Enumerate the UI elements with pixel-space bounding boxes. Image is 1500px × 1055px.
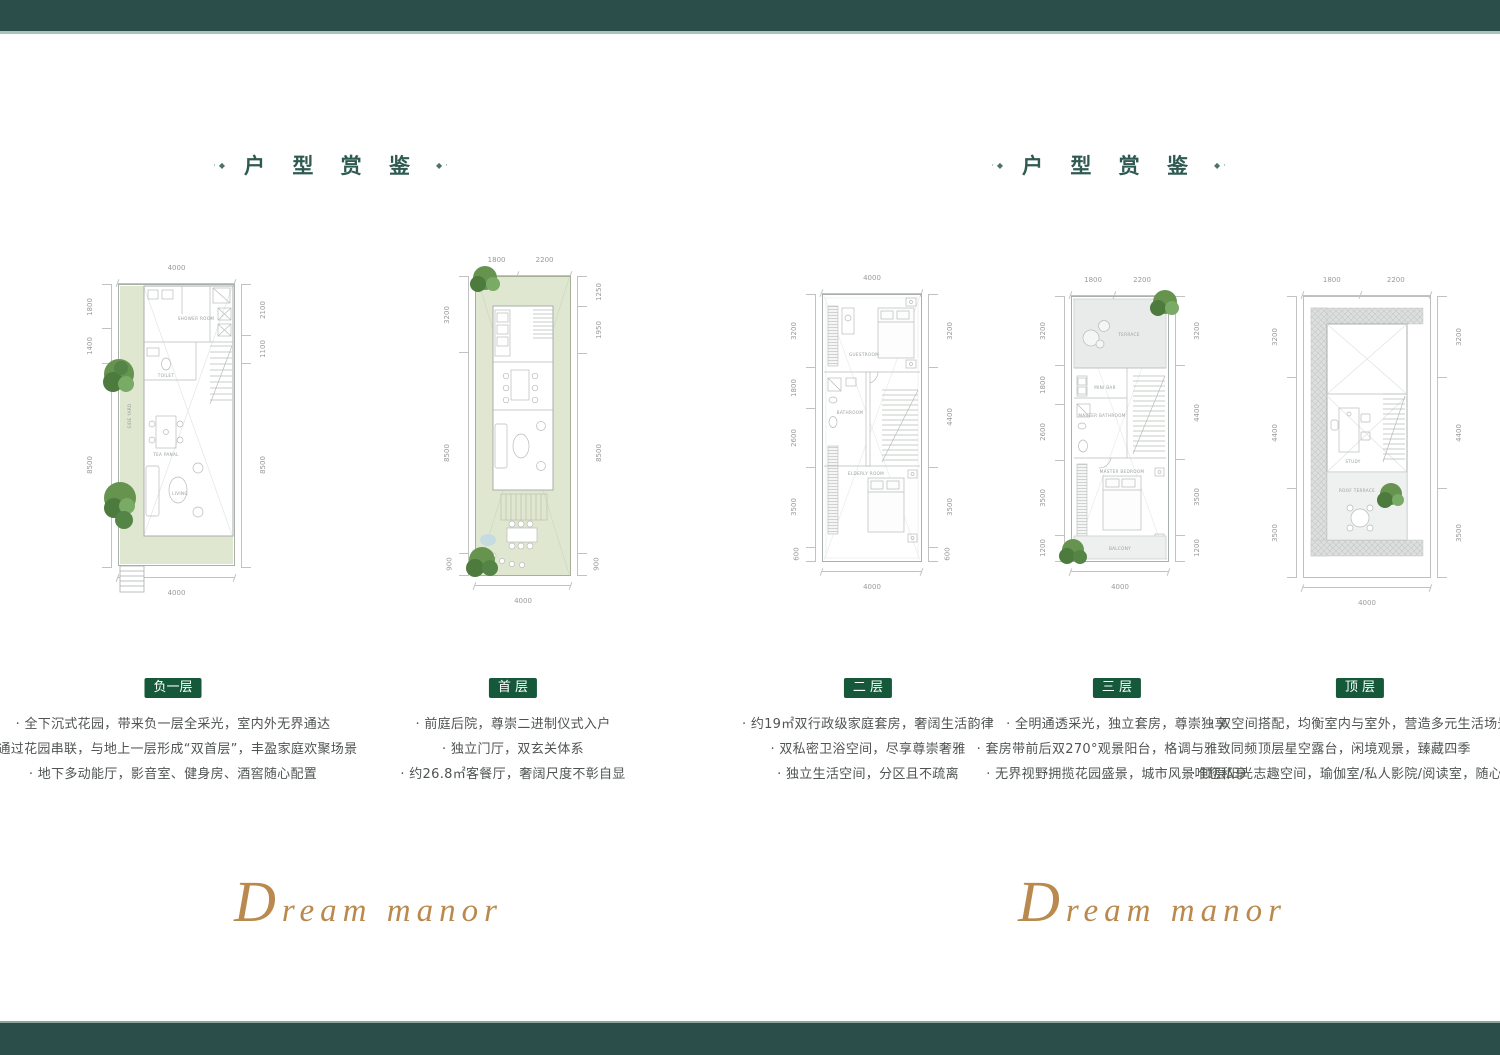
room-label-balcony: BALCONY xyxy=(1109,546,1131,551)
exterior-stairs xyxy=(120,566,144,592)
dimension-chain-bottom: 4000 xyxy=(1303,578,1431,608)
dimension-chain-bottom: 4000 xyxy=(822,562,922,592)
floorplan-drawing: STUDY ROOF TERRACE xyxy=(1303,296,1431,578)
dimension-chain-left: 32001800260035001200 xyxy=(1029,296,1071,562)
dimension-label: 1800 xyxy=(1084,276,1102,284)
dimension-label: 4000 xyxy=(168,264,186,272)
dimension-label: 900 xyxy=(445,558,453,571)
dimension-chain-top: 18002200 xyxy=(1303,262,1431,296)
dimension-label: 900 xyxy=(593,558,601,571)
dimension-label: 8500 xyxy=(86,456,94,474)
dimension-label: 3500 xyxy=(1271,524,1279,542)
dimension-label: 1100 xyxy=(259,340,267,358)
diamond-deco-right-icon: ◆· xyxy=(436,161,451,170)
dimension-label: 3500 xyxy=(946,498,954,516)
dimension-label: 1800 xyxy=(488,256,506,264)
dimension-label: 600 xyxy=(792,548,800,561)
floorplan-second-floor: 4000 3200180026003500600 320044003500600… xyxy=(780,260,964,592)
dimension-label: 1200 xyxy=(1039,539,1047,557)
dimension-label: 3500 xyxy=(1193,488,1201,506)
dimension-label: 4400 xyxy=(1271,424,1279,442)
floor-badge-basement: 负一层 xyxy=(144,678,201,698)
dimension-label: 1400 xyxy=(86,337,94,355)
room-label-mini-bar: MINI BAR xyxy=(1094,385,1116,390)
floorplan-drawing xyxy=(475,276,571,576)
dimension-label: 1950 xyxy=(595,321,603,339)
description-line: 双空间搭配，均衡室内与室外，营造多元生活场景 xyxy=(1140,712,1500,737)
dimension-label: 4000 xyxy=(1111,583,1129,591)
floorplan-drawing: TERRACE MINI BAR MASTER BATHROOM MASTER … xyxy=(1071,296,1169,562)
dimension-label: 1800 xyxy=(790,379,798,397)
dimension-label: 4000 xyxy=(514,597,532,605)
dimension-label: 1250 xyxy=(595,283,603,301)
dimension-label: 3200 xyxy=(1271,328,1279,346)
dimension-label: 3500 xyxy=(1455,524,1463,542)
floorplan-first-floor: 18002200 32008500900 125019508500900 400… xyxy=(433,242,613,602)
floorplan-drawing: SHOWER ROOM TOILET SIDE YARD TEA PANAL L… xyxy=(118,284,235,568)
dimension-chain-right: 210011008500 xyxy=(235,284,277,568)
dimension-label: 3500 xyxy=(1039,489,1047,507)
room-label-guestroom: GUESTROOM xyxy=(849,352,879,357)
brochure-page: ·◆ 户 型 赏 鉴 ◆· ·◆ 户 型 赏 鉴 ◆· 4000 1800140… xyxy=(0,0,1500,1055)
dimension-label: 8500 xyxy=(595,445,603,463)
dimension-label: 8500 xyxy=(443,444,451,462)
room-label-living: LIVING xyxy=(172,491,188,496)
diamond-deco-left-icon: ·◆ xyxy=(991,161,1006,170)
dimension-chain-right: 3200440035001200 xyxy=(1169,296,1211,562)
floor-badge-third-floor: 三 层 xyxy=(1093,678,1141,698)
room-label-bathroom: BATHROOM xyxy=(837,410,864,415)
room-label-terrace: TERRACE xyxy=(1117,332,1139,337)
diamond-deco-right-icon: ◆· xyxy=(1214,161,1229,170)
dimension-label: 1800 xyxy=(1039,376,1047,394)
dimension-chain-left: 3200180026003500600 xyxy=(780,294,822,562)
floorplan-third-floor: 18002200 32001800260035001200 3200440035… xyxy=(1029,262,1211,592)
dimension-label: 4400 xyxy=(1455,424,1463,442)
room-label-master-bedroom: MASTER BEDROOM xyxy=(1100,469,1145,474)
room-label-master-bathroom: MASTER BATHROOM xyxy=(1078,413,1125,418)
left-panel-title: ·◆ 户 型 赏 鉴 ◆· xyxy=(172,150,492,180)
floorplan-top-floor: 18002200 320044003500 320044003500 4000 xyxy=(1261,262,1473,608)
dimension-chain-top: 18002200 xyxy=(1071,262,1169,296)
floorplan-basement: 4000 180014008500 210011008500 4000 xyxy=(76,250,277,598)
diamond-deco-left-icon: ·◆ xyxy=(213,161,228,170)
dimension-label: 2600 xyxy=(790,429,798,447)
brand-script-text: Dream manor xyxy=(1018,868,1287,935)
floor-description-top-floor: 双空间搭配，均衡室内与室外，营造多元生活场景 顶层星空露台，闲境观景，臻藏四季 … xyxy=(1140,712,1500,787)
bottom-frame-bar xyxy=(0,1021,1500,1055)
dimension-label: 1800 xyxy=(1323,276,1341,284)
brand-script-text: Dream manor xyxy=(234,868,503,935)
dimension-label: 3200 xyxy=(1193,322,1201,340)
room-label-tea: TEA PANAL xyxy=(152,452,179,457)
dimension-label: 3200 xyxy=(443,306,451,324)
dimension-label: 1200 xyxy=(1193,539,1201,557)
dimension-label: 1800 xyxy=(86,298,94,316)
dimension-chain-left: 32008500900 xyxy=(433,276,475,576)
description-line: 顶层阳光志趣空间，瑜伽室/私人影院/阅读室，随心而定 xyxy=(1140,762,1500,787)
dimension-label: 3200 xyxy=(946,322,954,340)
dimension-label: 3200 xyxy=(1039,322,1047,340)
right-panel-title: ·◆ 户 型 赏 鉴 ◆· xyxy=(950,150,1270,180)
dimension-chain-top: 4000 xyxy=(822,260,922,294)
page-title: 户 型 赏 鉴 xyxy=(244,150,420,180)
dimension-chain-left: 320044003500 xyxy=(1261,296,1303,578)
page-title: 户 型 赏 鉴 xyxy=(1022,150,1198,180)
dimension-chain-right: 125019508500900 xyxy=(571,276,613,576)
dimension-label: 4000 xyxy=(1358,599,1376,607)
dimension-label: 4400 xyxy=(946,408,954,426)
dimension-label: 3200 xyxy=(790,322,798,340)
dimension-label: 2100 xyxy=(259,301,267,319)
dimension-label: 8500 xyxy=(259,456,267,474)
room-label-shower: SHOWER ROOM xyxy=(178,316,215,321)
dimension-chain-bottom: 4000 xyxy=(475,576,571,602)
description-line: 顶层星空露台，闲境观景，臻藏四季 xyxy=(1140,737,1500,762)
room-label-elderly-room: ELDERLY ROOM xyxy=(848,471,884,476)
dimension-label: 3500 xyxy=(790,498,798,516)
floor-badge-first-floor: 首 层 xyxy=(489,678,537,698)
room-label-study: STUDY xyxy=(1345,459,1360,464)
dimension-label: 2600 xyxy=(1039,423,1047,441)
floor-badge-top-floor: 顶 层 xyxy=(1336,678,1384,698)
floorplan-drawing: GUESTROOM BATHROOM ELDERLY ROOM xyxy=(822,294,922,562)
dimension-label: 4400 xyxy=(1193,404,1201,422)
dimension-label: 3200 xyxy=(1455,328,1463,346)
dimension-chain-bottom: 4000 xyxy=(1071,562,1169,592)
dimension-label: 4000 xyxy=(863,274,881,282)
dimension-label: 600 xyxy=(944,548,952,561)
dimension-chain-right: 320044003500600 xyxy=(922,294,964,562)
dimension-label: 2200 xyxy=(1387,276,1405,284)
dimension-label: 4000 xyxy=(863,583,881,591)
dimension-chain-left: 180014008500 xyxy=(76,284,118,568)
room-label-toilet: TOILET xyxy=(157,373,175,378)
dimension-chain-right: 320044003500 xyxy=(1431,296,1473,578)
top-frame-bar xyxy=(0,0,1500,34)
dimension-label: 4000 xyxy=(168,589,186,597)
room-label-side-yard: SIDE YARD xyxy=(127,403,132,428)
dimension-label: 2200 xyxy=(536,256,554,264)
pond xyxy=(480,534,496,546)
room-label-roof-terrace: ROOF TERRACE xyxy=(1339,488,1375,493)
floor-badge-second-floor: 二 层 xyxy=(844,678,892,698)
dimension-label: 2200 xyxy=(1133,276,1151,284)
dimension-chain-top: 4000 xyxy=(118,250,235,284)
